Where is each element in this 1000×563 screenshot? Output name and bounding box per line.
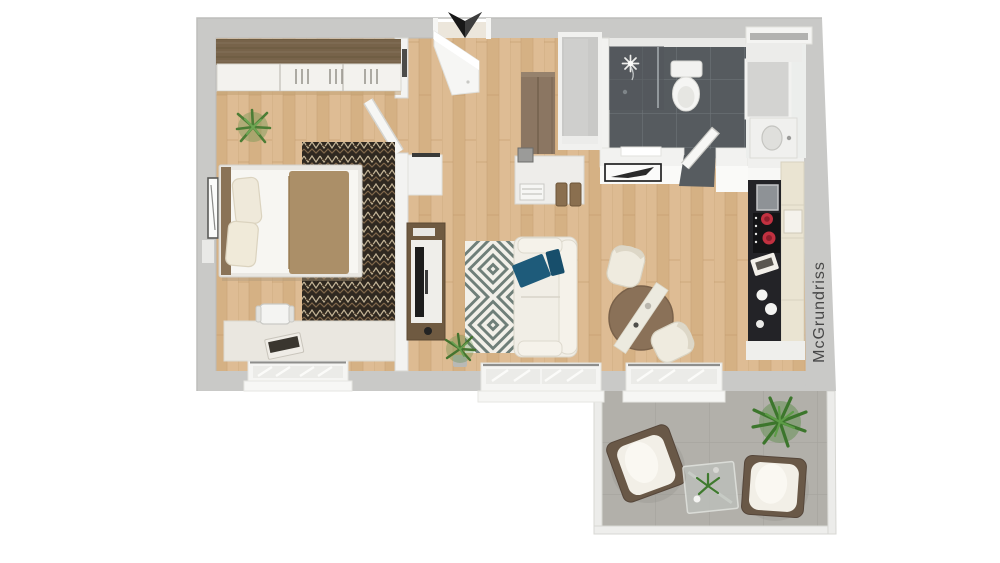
svg-text:McGrundriss: McGrundriss bbox=[811, 261, 828, 363]
